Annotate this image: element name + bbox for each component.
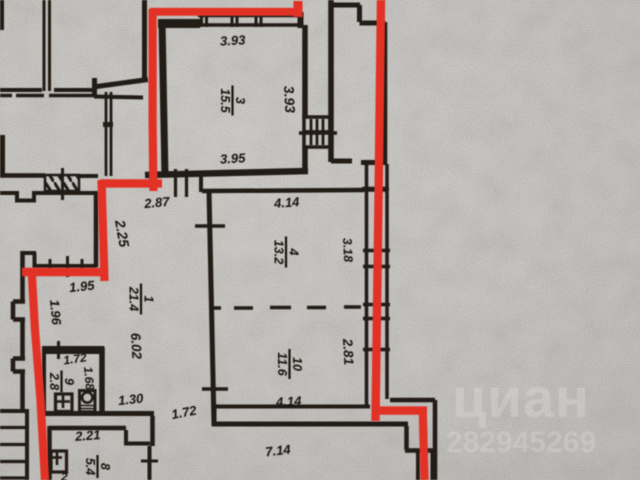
svg-text:2.21: 2.21	[74, 427, 101, 444]
svg-text:5.4: 5.4	[83, 458, 97, 475]
svg-text:11.6: 11.6	[275, 352, 289, 376]
svg-text:3.18: 3.18	[340, 237, 355, 262]
svg-text:15.5: 15.5	[218, 88, 232, 113]
svg-text:6.02: 6.02	[128, 332, 144, 360]
svg-text:13.2: 13.2	[272, 240, 286, 264]
svg-text:9: 9	[62, 378, 76, 385]
svg-text:10: 10	[290, 357, 304, 371]
svg-text:282945269: 282945269	[446, 426, 596, 459]
svg-text:1.95: 1.95	[68, 277, 95, 295]
svg-text:1.68: 1.68	[81, 366, 97, 391]
svg-text:2.8: 2.8	[47, 372, 61, 390]
svg-text:8: 8	[98, 463, 112, 470]
svg-text:4: 4	[287, 248, 301, 256]
svg-text:3.93: 3.93	[281, 85, 298, 113]
svg-text:4.14: 4.14	[273, 194, 301, 211]
svg-text:4.14: 4.14	[275, 393, 303, 409]
svg-text:3.95: 3.95	[220, 150, 247, 166]
svg-text:2: 2	[60, 470, 68, 480]
svg-text:2.87: 2.87	[143, 194, 171, 211]
svg-text:3: 3	[233, 97, 247, 104]
svg-text:7.14: 7.14	[265, 442, 292, 460]
svg-text:1: 1	[142, 296, 156, 303]
svg-text:2.81: 2.81	[340, 337, 356, 365]
svg-text:1.30: 1.30	[117, 390, 144, 408]
svg-text:21.4: 21.4	[127, 286, 141, 311]
svg-text:1.96: 1.96	[47, 299, 64, 326]
svg-text:циан: циан	[452, 366, 590, 429]
svg-text:3.93: 3.93	[220, 32, 247, 48]
